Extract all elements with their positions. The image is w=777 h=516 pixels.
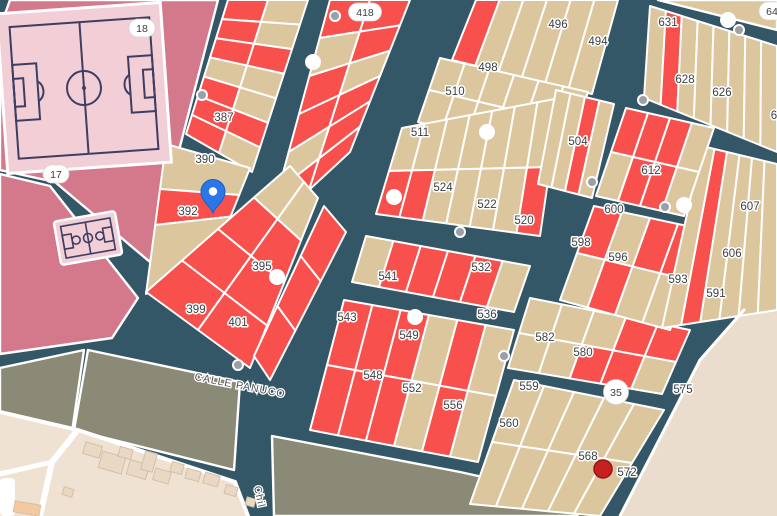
- parcel-number-label: 591: [706, 288, 725, 300]
- parcel-number-label: 548: [363, 370, 382, 382]
- parcel-number-label: 568: [578, 451, 597, 463]
- parcel-number-label: 504: [568, 136, 588, 148]
- parcel-number-label: 593: [668, 274, 687, 286]
- parcel-number-label: 556: [443, 400, 462, 412]
- parcel-number-label: 498: [478, 62, 497, 74]
- parcel-number-label: 399: [186, 304, 205, 316]
- parcel-number-label: 559: [519, 381, 538, 393]
- parcel-number-label: 6: [771, 110, 777, 122]
- gray-dot-marker[interactable]: [587, 177, 597, 187]
- location-pin-center[interactable]: [209, 187, 217, 195]
- block-number-badge-text: 64: [766, 6, 777, 18]
- parcel-number-label: 575: [673, 384, 692, 396]
- parcel-number-label: 572: [617, 467, 636, 479]
- parcel-number-label: 520: [514, 215, 533, 227]
- map-canvas[interactable]: CALLE PANUCOChil387390392395399401496494…: [0, 0, 777, 516]
- parcel-number-label: 560: [499, 418, 518, 430]
- parcel-number-label: 524: [433, 182, 453, 194]
- parcel-number-label: 395: [252, 261, 271, 273]
- white-circle-marker[interactable]: [479, 124, 495, 140]
- parcel-number-label: 511: [411, 127, 429, 139]
- parcel-number-label: 582: [535, 332, 554, 344]
- white-circle-marker[interactable]: [386, 189, 402, 205]
- white-circle-marker[interactable]: [407, 309, 423, 325]
- gray-dot-marker[interactable]: [499, 351, 509, 361]
- parcel-number-label: 541: [378, 271, 397, 283]
- gray-dot-marker[interactable]: [233, 360, 243, 370]
- white-circle-marker[interactable]: [720, 12, 736, 28]
- parcel-number-label: 606: [722, 248, 741, 260]
- parcel-number-label: 552: [402, 383, 421, 395]
- parcel-number-label: 612: [641, 165, 660, 177]
- gray-dot-marker[interactable]: [330, 11, 340, 21]
- parcel-number-label: 401: [228, 317, 247, 329]
- block-number-badge-text: 418: [356, 7, 374, 19]
- parcel-number-label: 496: [548, 19, 567, 31]
- block-number-badge-text: 18: [136, 23, 148, 35]
- parcel-number-label: 598: [571, 237, 590, 249]
- parcel-number-label: 600: [604, 204, 623, 216]
- parcel: [760, 41, 777, 152]
- gray-dot-marker[interactable]: [660, 202, 670, 212]
- parcel-number-label: 532: [471, 262, 490, 274]
- gray-dot-marker[interactable]: [197, 90, 207, 100]
- parcel: [261, 0, 308, 25]
- route-badge-text: 35: [610, 387, 622, 399]
- block-number-badge-text: 17: [50, 169, 62, 181]
- parcel-number-label: 536: [477, 309, 496, 321]
- parcel-number-label: 607: [740, 201, 759, 213]
- parcel-number-label: 522: [477, 199, 496, 211]
- parcel-number-label: 626: [712, 87, 731, 99]
- map-svg: CALLE PANUCOChil387390392395399401496494…: [0, 0, 777, 516]
- parcel: [727, 31, 745, 139]
- minor-road-corner: [0, 478, 15, 516]
- parcel-number-label: 510: [445, 86, 464, 98]
- parcel: [744, 36, 761, 145]
- parcel-number-label: 387: [214, 112, 233, 124]
- gray-dot-marker[interactable]: [734, 25, 744, 35]
- parcel-number-label: 596: [608, 252, 627, 264]
- red-dot-marker[interactable]: [594, 460, 612, 478]
- white-circle-marker[interactable]: [676, 197, 692, 213]
- parcel-number-label: 631: [658, 17, 677, 29]
- white-circle-marker[interactable]: [305, 54, 321, 70]
- parcel-number-label: 392: [178, 206, 197, 218]
- parcel-number-label: 628: [675, 74, 694, 86]
- gray-dot-marker[interactable]: [455, 227, 465, 237]
- basketball-court-icon: [54, 211, 123, 265]
- parcel-number-label: 543: [337, 312, 356, 324]
- parcel-number-label: 580: [573, 347, 592, 359]
- parcel-number-label: 549: [399, 330, 418, 342]
- white-circle-marker[interactable]: [269, 269, 285, 285]
- parcel-number-label: 390: [195, 154, 214, 166]
- parcel-number-label: 494: [588, 36, 608, 48]
- gray-dot-marker[interactable]: [638, 95, 648, 105]
